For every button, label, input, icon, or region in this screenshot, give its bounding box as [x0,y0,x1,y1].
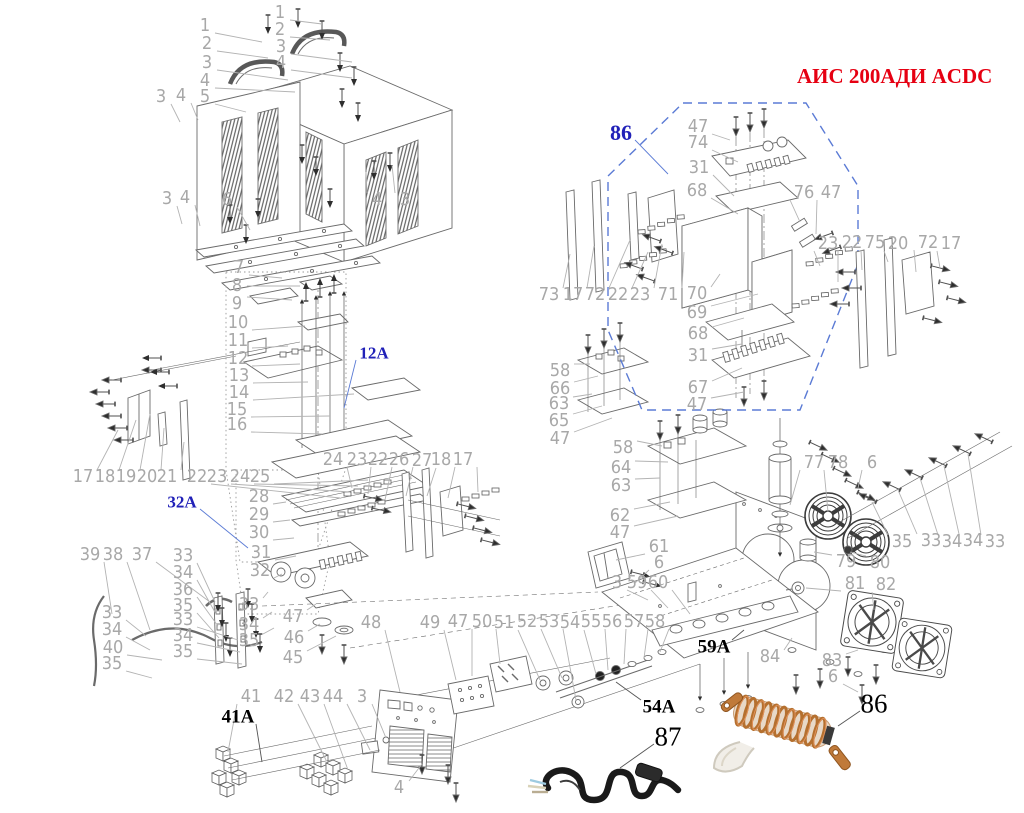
part-callout-3: 3 [357,688,367,706]
part-callout-35: 35 [239,632,260,650]
part-callout-86: 86 [861,691,888,718]
part-callout-22: 22 [608,286,629,304]
part-callout-72: 72 [918,234,939,252]
part-callout-75: 75 [865,234,886,252]
part-callout-46: 46 [284,629,305,647]
part-callout-3: 3 [400,191,410,209]
part-callout-87: 87 [655,724,682,751]
part-callout-4: 4 [372,191,382,209]
part-callout-76: 76 [794,184,815,202]
part-callout-35: 35 [173,643,194,661]
part-callout-17: 17 [73,468,94,486]
part-callout-47: 47 [283,608,304,626]
part-callout-4: 4 [180,189,190,207]
part-callout-21: 21 [157,468,178,486]
part-callout-71: 71 [658,286,679,304]
part-callout-24: 24 [230,468,251,486]
part-callout-6: 6 [654,554,664,572]
part-callout-2: 2 [202,35,212,53]
part-callout-54: 54 [560,614,581,632]
product-title: АИС 200АДИ ACDC [797,64,992,89]
part-callout-45: 45 [283,649,304,667]
part-callout-57: 57 [624,613,645,631]
part-callout-70: 70 [687,285,708,303]
part-callout-72: 72 [585,286,606,304]
part-callout-23: 23 [207,468,228,486]
part-callout-47: 47 [821,184,842,202]
part-callout-68: 68 [687,182,708,200]
part-callout-22: 22 [187,468,208,486]
part-callout-6: 6 [222,191,232,209]
part-callout-68: 68 [688,325,709,343]
part-callout-47: 47 [448,613,469,631]
part-callout-49: 49 [420,614,441,632]
part-callout-19: 19 [116,468,137,486]
part-callout-47: 47 [687,396,708,414]
part-callout-3: 3 [162,190,172,208]
part-callout-33: 33 [921,532,942,550]
callout-layer: 1234512343434643789101112131415161718192… [0,0,1024,813]
part-callout-20: 20 [137,468,158,486]
part-callout-32A: 32A [167,494,196,511]
part-callout-51: 51 [494,614,515,632]
part-callout-6: 6 [828,668,838,686]
part-callout-23: 23 [347,451,368,469]
part-callout-82: 82 [876,576,897,594]
part-callout-35: 35 [892,533,913,551]
part-callout-81: 81 [845,575,866,593]
part-callout-58: 58 [645,613,666,631]
part-callout-58: 58 [613,439,634,457]
part-callout-6: 6 [867,454,877,472]
part-callout-73: 73 [539,286,560,304]
part-callout-44: 44 [323,688,344,706]
part-callout-59: 59 [627,574,648,592]
part-callout-22: 22 [368,451,389,469]
part-callout-78: 78 [828,454,849,472]
part-callout-16: 16 [227,416,248,434]
part-callout-59A: 59A [698,638,731,657]
part-callout-12A: 12A [359,345,388,362]
part-callout-25: 25 [250,468,271,486]
part-callout-5: 5 [200,88,210,106]
part-callout-38: 38 [103,546,124,564]
part-callout-24: 24 [323,451,344,469]
part-callout-86: 86 [610,122,632,144]
part-callout-43: 43 [300,688,321,706]
part-callout-53: 53 [539,613,560,631]
part-callout-63: 63 [611,477,632,495]
part-callout-4: 4 [394,779,404,797]
part-callout-4: 4 [176,87,186,105]
part-callout-55: 55 [581,613,602,631]
part-callout-27: 27 [412,452,433,470]
part-callout-42: 42 [274,688,295,706]
part-callout-52: 52 [517,613,538,631]
part-callout-18: 18 [431,451,452,469]
part-callout-18: 18 [95,468,116,486]
part-callout-30: 30 [249,524,270,542]
part-callout-41A: 41A [222,708,255,727]
part-callout-3: 3 [612,574,622,592]
part-callout-56: 56 [602,613,623,631]
part-callout-17: 17 [563,286,584,304]
diagram-stage: 1234512343434643789101112131415161718192… [0,0,1024,813]
part-callout-74: 74 [688,134,709,152]
part-callout-48: 48 [361,614,382,632]
part-callout-20: 20 [888,235,909,253]
part-callout-23: 23 [630,286,651,304]
part-callout-34: 34 [963,532,984,550]
part-callout-22: 22 [842,234,863,252]
part-callout-9: 9 [232,295,242,313]
part-callout-23: 23 [818,235,839,253]
part-callout-54A: 54A [643,698,676,717]
part-callout-39: 39 [80,546,101,564]
part-callout-17: 17 [941,235,962,253]
part-callout-79: 79 [836,553,857,571]
part-callout-17: 17 [453,451,474,469]
part-callout-50: 50 [472,613,493,631]
part-callout-84: 84 [760,648,781,666]
part-callout-31: 31 [688,347,709,365]
part-callout-47: 47 [550,430,571,448]
part-callout-32: 32 [250,562,271,580]
part-callout-33: 33 [985,533,1006,551]
part-callout-4: 4 [276,54,286,72]
part-callout-77: 77 [804,454,825,472]
part-callout-41: 41 [241,688,262,706]
part-callout-34: 34 [942,533,963,551]
part-callout-80: 80 [870,554,891,572]
part-callout-47: 47 [610,524,631,542]
part-callout-31: 31 [689,159,710,177]
part-callout-35: 35 [102,655,123,673]
part-callout-69: 69 [687,304,708,322]
part-callout-33: 33 [239,596,260,614]
part-callout-60: 60 [648,574,669,592]
part-callout-37: 37 [132,546,153,564]
part-callout-3: 3 [156,88,166,106]
part-callout-26: 26 [389,451,410,469]
